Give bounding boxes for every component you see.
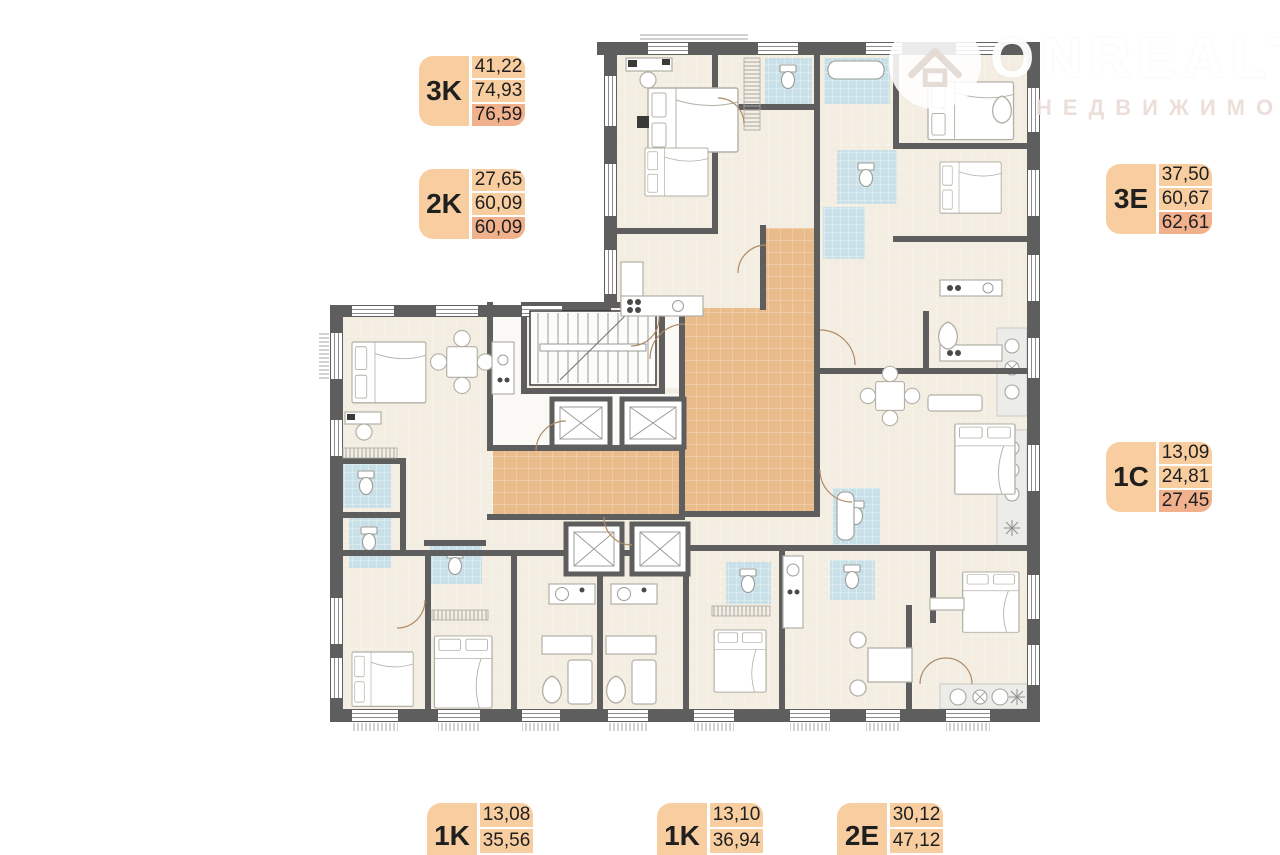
apartment-tag-3k: 3K 41,22 74,93 76,59 <box>419 56 525 126</box>
stairwell <box>530 311 656 385</box>
area-value: 41,22 <box>472 56 525 78</box>
apartment-tag-2e: 2E 30,12 47,12 <box>837 803 943 855</box>
apartment-tag-3e: 3E 37,50 60,67 62,61 <box>1106 164 1212 234</box>
area-value-total: 62,61 <box>1159 212 1212 234</box>
area-value: 35,56 <box>480 829 533 853</box>
apartment-code: 1K <box>657 803 707 855</box>
apartment-code: 3K <box>419 56 469 126</box>
area-value-total: 76,59 <box>472 104 525 126</box>
apartment-tag-1c: 1C 13,09 24,81 27,45 <box>1106 442 1212 512</box>
area-value: 36,94 <box>710 829 763 853</box>
apartment-code: 2K <box>419 169 469 239</box>
apartment-code: 3E <box>1106 164 1156 234</box>
floorplan-page: ONREALT НЕДВИЖИМОСТЬ 3K 41,22 74,93 76,5… <box>0 0 1280 855</box>
area-value-total: 60,09 <box>472 217 525 239</box>
apartment-tag-1k-a: 1K 13,08 35,56 <box>427 803 533 855</box>
apartment-code: 1C <box>1106 442 1156 512</box>
apartment-code: 2E <box>837 803 887 855</box>
area-value: 37,50 <box>1159 164 1212 186</box>
area-value: 27,65 <box>472 169 525 191</box>
area-value: 60,09 <box>472 193 525 215</box>
apartment-code: 1K <box>427 803 477 855</box>
apartment-tag-1k-b: 1K 13,10 36,94 <box>657 803 763 855</box>
apartment-tag-2k: 2K 27,65 60,09 60,09 <box>419 169 525 239</box>
area-value: 13,09 <box>1159 442 1212 464</box>
area-value: 47,12 <box>890 829 943 853</box>
area-value-total: 27,45 <box>1159 490 1212 512</box>
area-value: 13,10 <box>710 803 763 827</box>
area-value: 24,81 <box>1159 466 1212 488</box>
area-value: 30,12 <box>890 803 943 827</box>
area-value: 13,08 <box>480 803 533 827</box>
floor-plan <box>0 0 1280 855</box>
area-value: 74,93 <box>472 80 525 102</box>
area-value: 60,67 <box>1159 188 1212 210</box>
